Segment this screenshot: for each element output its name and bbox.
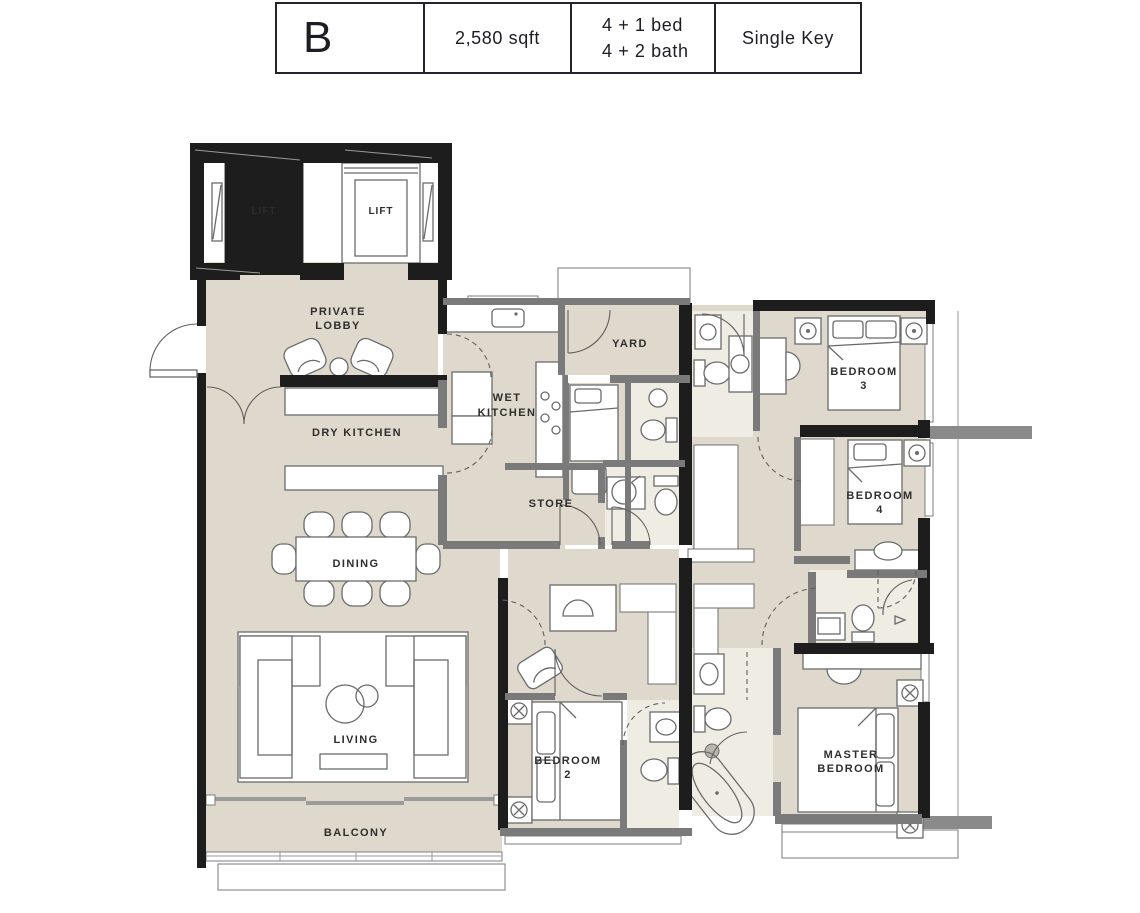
- bedroom4-wardrobe: [800, 439, 834, 525]
- facade-fin-upper: [930, 426, 1032, 439]
- label-yard: YARD: [612, 338, 648, 350]
- label-bedroom3-2: 3: [860, 380, 868, 392]
- label-bedroom4-1: BEDROOM: [846, 490, 913, 502]
- label-store: STORE: [529, 498, 574, 510]
- floor-plan-svg: LIFT LIFT PRIVATE LOBBY DRY KITCHEN WET …: [0, 0, 1140, 913]
- tv-console: [320, 754, 387, 769]
- label-bedroom4-2: 4: [876, 504, 884, 516]
- label-lift-1: LIFT: [251, 206, 276, 217]
- dry-kitchen-counter: [285, 388, 440, 415]
- label-bedroom2-1: BEDROOM: [534, 755, 601, 767]
- label-master-2: BEDROOM: [817, 763, 884, 775]
- label-lift-2: LIFT: [368, 206, 393, 217]
- entry-door: [150, 324, 197, 377]
- common-bath-fixtures: [607, 476, 678, 515]
- label-wet-kitchen-1: WET: [493, 392, 522, 404]
- label-bedroom3-1: BEDROOM: [830, 366, 897, 378]
- bedroom3-dresser: [756, 338, 786, 394]
- label-master-1: MASTER: [824, 749, 879, 761]
- facade-fin-lower: [922, 816, 992, 829]
- hall-wardrobe: [694, 445, 738, 549]
- master-vanity: [803, 652, 921, 669]
- dry-kitchen-island: [285, 466, 443, 490]
- lobby-side-table: [330, 358, 348, 376]
- label-private-lobby-2: LOBBY: [315, 320, 361, 332]
- floor-plan-page: B 2,580 sqft 4 + 1 bed 4 + 2 bath Single…: [0, 0, 1140, 913]
- label-dry-kitchen: DRY KITCHEN: [312, 427, 402, 439]
- label-dining: DINING: [333, 558, 380, 570]
- label-wet-kitchen-2: KITCHEN: [478, 407, 537, 419]
- label-private-lobby-1: PRIVATE: [310, 306, 366, 318]
- label-bedroom2-2: 2: [564, 769, 572, 781]
- label-living: LIVING: [333, 734, 378, 746]
- coffee-table: [326, 685, 364, 723]
- label-balcony: BALCONY: [324, 827, 388, 839]
- living-set: [238, 632, 468, 782]
